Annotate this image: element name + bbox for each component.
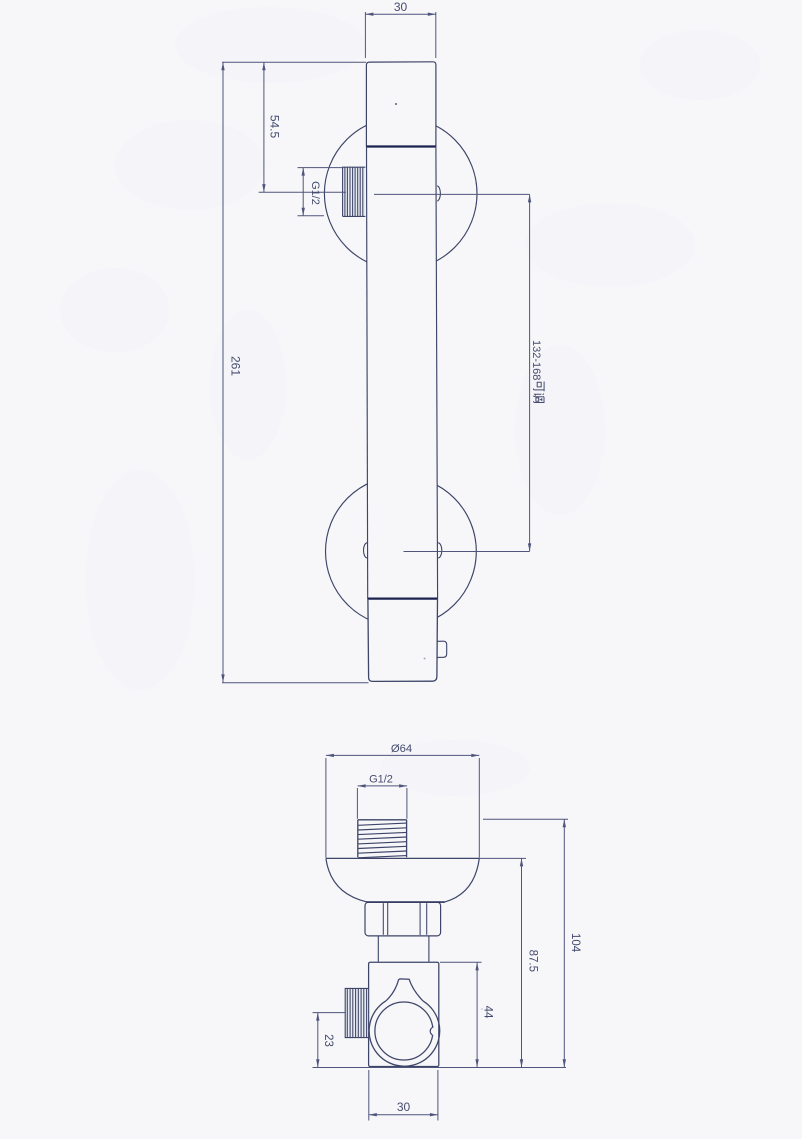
svg-text:54.5: 54.5 xyxy=(268,115,282,139)
svg-text:30: 30 xyxy=(394,0,408,14)
svg-text:30: 30 xyxy=(397,1100,411,1114)
svg-text:87.5: 87.5 xyxy=(526,950,538,972)
svg-text:104: 104 xyxy=(569,933,581,953)
svg-text:44: 44 xyxy=(481,1006,493,1019)
svg-text:23: 23 xyxy=(322,1034,334,1047)
svg-text:261: 261 xyxy=(229,356,243,376)
svg-text:132-168: 132-168 xyxy=(530,340,542,380)
svg-text:G1/2: G1/2 xyxy=(369,774,393,786)
svg-text:Ø64: Ø64 xyxy=(391,743,412,755)
svg-text:G1/2: G1/2 xyxy=(309,181,321,205)
